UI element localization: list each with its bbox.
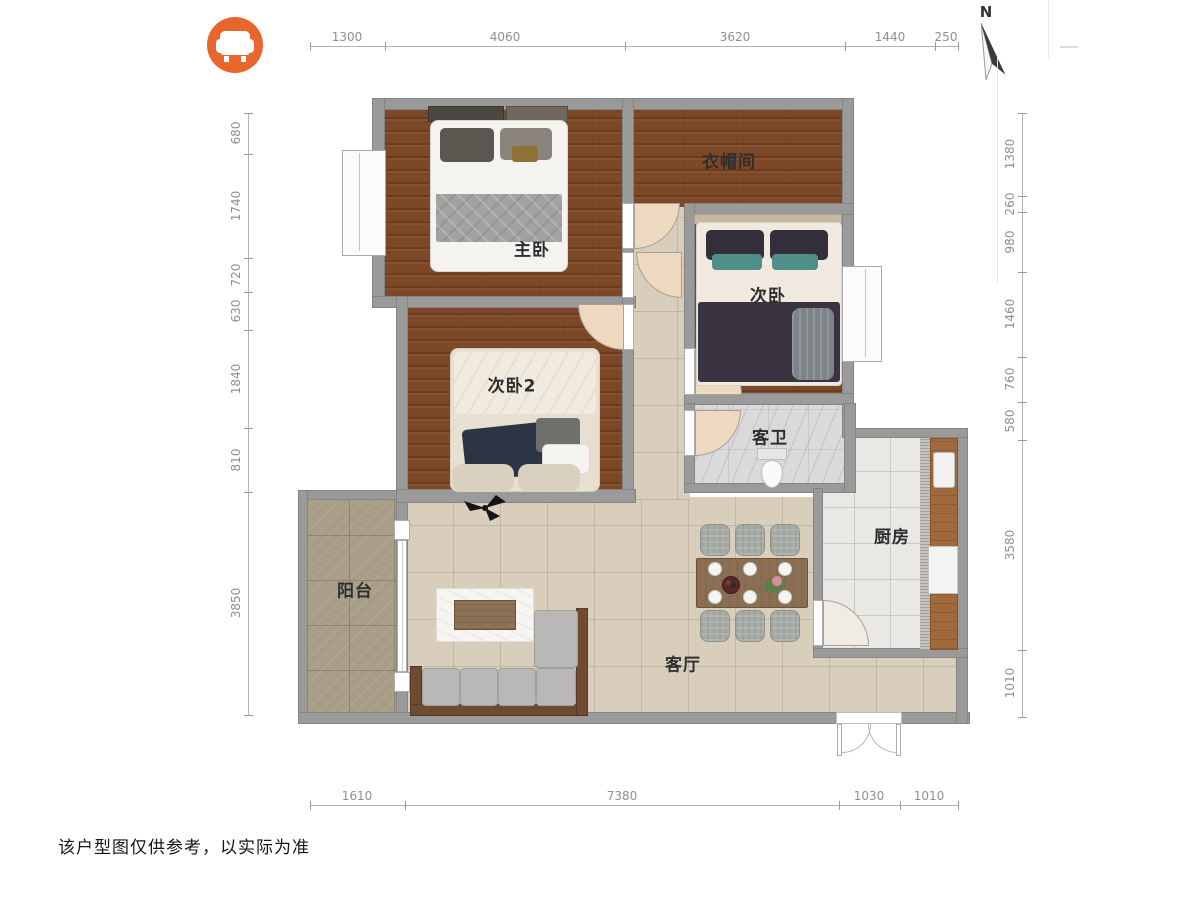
dimension-tick — [244, 154, 253, 155]
room-label-kitchen: 厨房 — [874, 523, 910, 548]
fruit-bowl — [722, 576, 740, 594]
wall — [298, 490, 308, 722]
door-leaf — [684, 410, 695, 456]
kitchen-sink — [933, 452, 955, 488]
door-leaf — [813, 600, 823, 646]
bay-window — [842, 266, 882, 362]
dimension-label: 580 — [1003, 410, 1017, 433]
dimension-label: 4060 — [490, 30, 521, 44]
room-label-bedroom-2: 次卧 — [750, 282, 786, 307]
dimension-line-bottom — [310, 805, 958, 806]
dimension-label: 720 — [229, 264, 243, 287]
window-mullion — [359, 153, 360, 251]
floor-corridor — [630, 205, 690, 500]
dining-chair — [735, 524, 765, 556]
dimension-tick — [1018, 440, 1027, 441]
plate — [778, 590, 792, 604]
dimension-label: 3580 — [1003, 530, 1017, 561]
dimension-tick — [958, 42, 959, 51]
plate — [708, 590, 722, 604]
dining-chair — [700, 524, 730, 556]
plate — [708, 562, 722, 576]
door-jamb — [394, 672, 410, 692]
door-jamb — [394, 520, 410, 540]
sofa-cushion — [498, 668, 536, 706]
dimension-tick — [244, 492, 253, 493]
sofa-cushion — [422, 668, 460, 706]
counter-edge — [920, 438, 930, 650]
room-label-cloakroom: 衣帽间 — [702, 148, 756, 173]
dimension-tick — [244, 715, 253, 716]
dining-chair — [735, 610, 765, 642]
dimension-label: 1010 — [914, 789, 945, 803]
guide-line-2 — [1048, 0, 1049, 58]
throw-pillow — [772, 254, 818, 270]
dimension-label: 1030 — [854, 789, 885, 803]
sofa-chaise — [534, 610, 578, 668]
dimension-line-top — [310, 46, 958, 47]
dimension-label: 1380 — [1003, 139, 1017, 170]
dimension-tick — [244, 292, 253, 293]
dimension-tick — [244, 258, 253, 259]
dimension-label: 760 — [1003, 368, 1017, 391]
throw-blanket — [792, 308, 834, 380]
sliding-door-track — [402, 541, 403, 671]
dimension-label: 1610 — [342, 789, 373, 803]
wall — [848, 428, 968, 438]
door-leaf — [622, 203, 634, 249]
room-label-master-bedroom: 主卧 — [514, 236, 550, 261]
plate — [743, 590, 757, 604]
armchair-icon — [207, 17, 263, 73]
throw-pillow — [712, 254, 762, 270]
pillow — [440, 128, 494, 162]
floorplan-page: N 1300 4060 3620 1440 250 680 1740 720 6… — [0, 0, 1200, 900]
plate — [778, 562, 792, 576]
dimension-label: 260 — [1003, 193, 1017, 216]
dimension-tick — [1018, 212, 1027, 213]
dimension-tick — [244, 330, 253, 331]
compass: N — [958, 0, 1028, 110]
dimension-tick — [958, 801, 959, 810]
dimension-label: 1460 — [1003, 299, 1017, 330]
window-mullion — [865, 269, 866, 357]
disclaimer-text: 该户型图仅供参考，以实际为准 — [58, 833, 310, 858]
wall — [844, 403, 856, 493]
throw-pillow — [512, 146, 538, 162]
dimension-tick — [244, 113, 253, 114]
plate — [743, 562, 757, 576]
dimension-tick — [625, 42, 626, 51]
dimension-label: 1440 — [875, 30, 906, 44]
dimension-tick — [1018, 272, 1027, 273]
dimension-line-left — [248, 113, 249, 715]
dimension-label: 630 — [229, 300, 243, 323]
guide-dash — [1060, 46, 1078, 48]
dimension-tick — [405, 801, 406, 810]
door-swing — [868, 724, 897, 753]
dimension-tick — [839, 801, 840, 810]
wall — [622, 98, 634, 208]
dimension-tick — [1018, 717, 1027, 718]
dimension-tick — [1018, 357, 1027, 358]
dimension-label: 3850 — [229, 588, 243, 619]
dimension-label: 980 — [1003, 231, 1017, 254]
wall — [298, 490, 410, 500]
toilet-tank — [757, 448, 787, 460]
dimension-label: 250 — [935, 30, 958, 44]
sofa-cushion — [460, 668, 498, 706]
dimension-label: 1740 — [229, 191, 243, 222]
coffee-table — [454, 600, 516, 630]
dimension-tick — [1018, 113, 1027, 114]
dimension-tick — [385, 42, 386, 51]
dimension-tick — [310, 42, 311, 51]
door-leaf — [622, 252, 634, 298]
room-label-guest-bathroom: 客卫 — [752, 424, 788, 449]
wall — [396, 296, 408, 503]
room-label-living-room: 客厅 — [665, 651, 701, 676]
door-leaf — [684, 348, 695, 395]
dimension-tick — [1018, 650, 1027, 651]
flowers — [772, 576, 782, 586]
dimension-label: 1010 — [1003, 668, 1017, 699]
dimension-tick — [1018, 402, 1027, 403]
dimension-label: 1300 — [332, 30, 363, 44]
dining-chair — [770, 610, 800, 642]
north-arrow-icon — [964, 16, 1016, 104]
dimension-tick — [310, 801, 311, 810]
sliding-door — [397, 540, 407, 672]
dimension-label: 680 — [229, 122, 243, 145]
dimension-label: 3620 — [720, 30, 751, 44]
ceiling-fan-icon — [462, 494, 508, 522]
dimension-label: 7380 — [607, 789, 638, 803]
bay-window — [342, 150, 386, 256]
dimension-line-right — [1022, 113, 1023, 717]
appliance — [928, 546, 958, 594]
dimension-tick — [244, 428, 253, 429]
dining-chair — [770, 524, 800, 556]
dining-chair — [700, 610, 730, 642]
entry-door-opening — [836, 712, 902, 724]
cushion — [452, 464, 514, 492]
floor-balcony — [304, 496, 402, 716]
dimension-label: 1840 — [229, 364, 243, 395]
cushion — [518, 464, 580, 492]
room-label-balcony: 阳台 — [337, 577, 373, 602]
sofa-cushion — [536, 668, 576, 706]
dimension-label: 810 — [229, 449, 243, 472]
door-swing — [842, 724, 871, 753]
dimension-tick — [1018, 196, 1027, 197]
dimension-tick — [900, 801, 901, 810]
dimension-tick — [845, 42, 846, 51]
room-label-bedroom-3: 次卧2 — [488, 372, 537, 397]
guide-line — [997, 55, 998, 283]
sofa-logo — [207, 17, 263, 73]
